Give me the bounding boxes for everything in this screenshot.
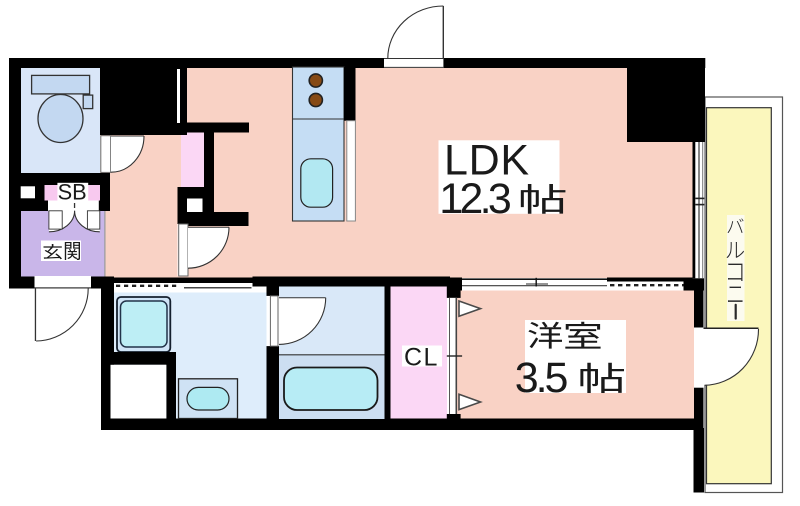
svg-text:3.5: 3.5 xyxy=(515,354,568,402)
svg-text:12.3: 12.3 xyxy=(439,175,511,223)
svg-text:CL: CL xyxy=(404,344,439,372)
svg-text:SB: SB xyxy=(58,179,87,204)
